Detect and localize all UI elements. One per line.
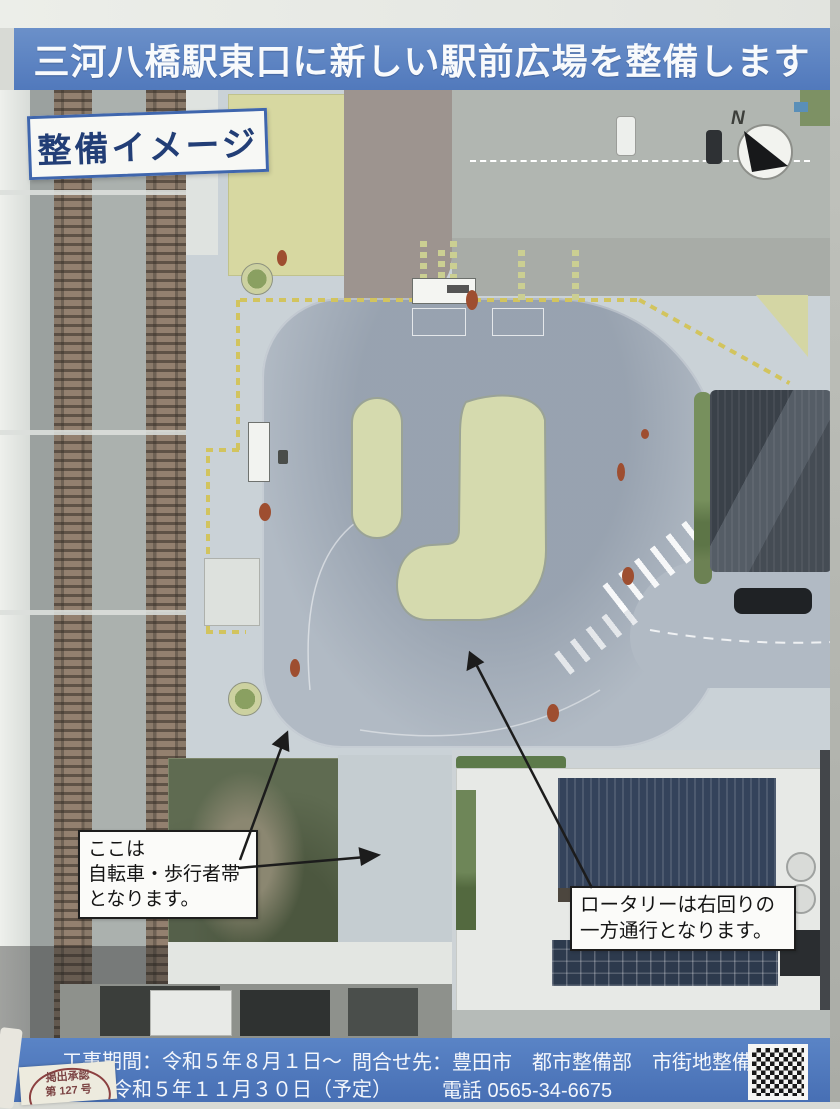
tactile-paving-line: [206, 448, 240, 452]
parked-car: [734, 588, 812, 614]
tactile-strip: [572, 248, 579, 300]
qr-code-icon: [748, 1044, 808, 1100]
overhead-beam: [0, 430, 188, 435]
building-roof: [150, 990, 232, 1036]
parking-stall-line: [470, 160, 810, 162]
callout-line: ロータリーは右回りの: [580, 893, 786, 919]
parked-van: [616, 116, 636, 156]
callout-line: 自転車・歩行者帯: [88, 862, 248, 887]
house-roof: [710, 390, 832, 572]
south-access-road: [452, 1010, 832, 1038]
north-road: [344, 90, 452, 302]
callout-line: ここは: [88, 837, 248, 862]
approval-stamp: 掲出承認 第 127 号: [19, 1061, 117, 1106]
header-banner: 三河八橋駅東口に新しい駅前広場を整備します: [14, 28, 830, 90]
image-label-box: 整備イメージ: [27, 108, 269, 180]
tactile-strip: [420, 240, 427, 280]
bus-shelter: [412, 278, 476, 304]
factory-roof: [558, 778, 776, 890]
building-roof: [240, 990, 330, 1036]
station-roof-band: [0, 90, 30, 1038]
plaza-tree: [228, 682, 262, 716]
overhead-beam: [0, 610, 188, 615]
rotary-ring-road: [262, 298, 722, 748]
callout-line: 一方通行となります。: [580, 919, 786, 945]
image-label-text: 整備イメージ: [37, 116, 260, 173]
hedge: [456, 790, 476, 930]
photo-right-edge: [830, 0, 840, 1102]
station-entrance: [204, 558, 260, 626]
east-road: [452, 238, 832, 296]
rooftop-tank: [786, 852, 816, 882]
contact-phone: 電話 0565-34-6675: [442, 1074, 612, 1103]
tactile-paving-line: [206, 630, 246, 634]
poster-title: 三河八橋駅東口に新しい駅前広場を整備します: [33, 33, 810, 85]
tactile-strip: [450, 240, 457, 280]
taxi-shelter: [248, 422, 270, 482]
bus-shelter-roof: [447, 285, 469, 293]
railway-shoulder: [30, 90, 54, 1038]
photo-top-margin: [0, 0, 840, 28]
south-walkway: [168, 942, 452, 984]
construction-period-line2: 令和５年１１月３０日（予定）: [112, 1073, 392, 1102]
callout-rotary-oneway: ロータリーは右回りの 一方通行となります。: [570, 886, 796, 951]
tactile-paving-line: [236, 298, 240, 450]
bus-bay-marking: [412, 308, 466, 336]
qr-pattern: [752, 1048, 804, 1096]
building-roof: [348, 988, 418, 1036]
callout-bike-pedestrian: ここは 自転車・歩行者帯 となります。: [78, 830, 258, 919]
tactile-strip: [518, 248, 525, 300]
parked-car: [706, 130, 722, 164]
plaza-tree: [241, 263, 273, 295]
pedestrian-marking: [278, 450, 288, 464]
poster-photo: { "header": { "title": "三河八橋駅東口に新しい駅前広場を…: [0, 0, 840, 1102]
bus-bay-marking: [492, 308, 544, 336]
blue-structure: [794, 102, 808, 112]
overhead-beam: [0, 190, 188, 195]
footer-banner: 工事期間：令和５年８月１日～ 令和５年１１月３０日（予定） 問合せ先：豊田市 都…: [12, 1038, 832, 1102]
contact-department: 問合せ先：豊田市 都市整備部 市街地整備課: [352, 1046, 772, 1075]
callout-line: となります。: [88, 887, 248, 912]
parking-lot: [452, 90, 832, 238]
